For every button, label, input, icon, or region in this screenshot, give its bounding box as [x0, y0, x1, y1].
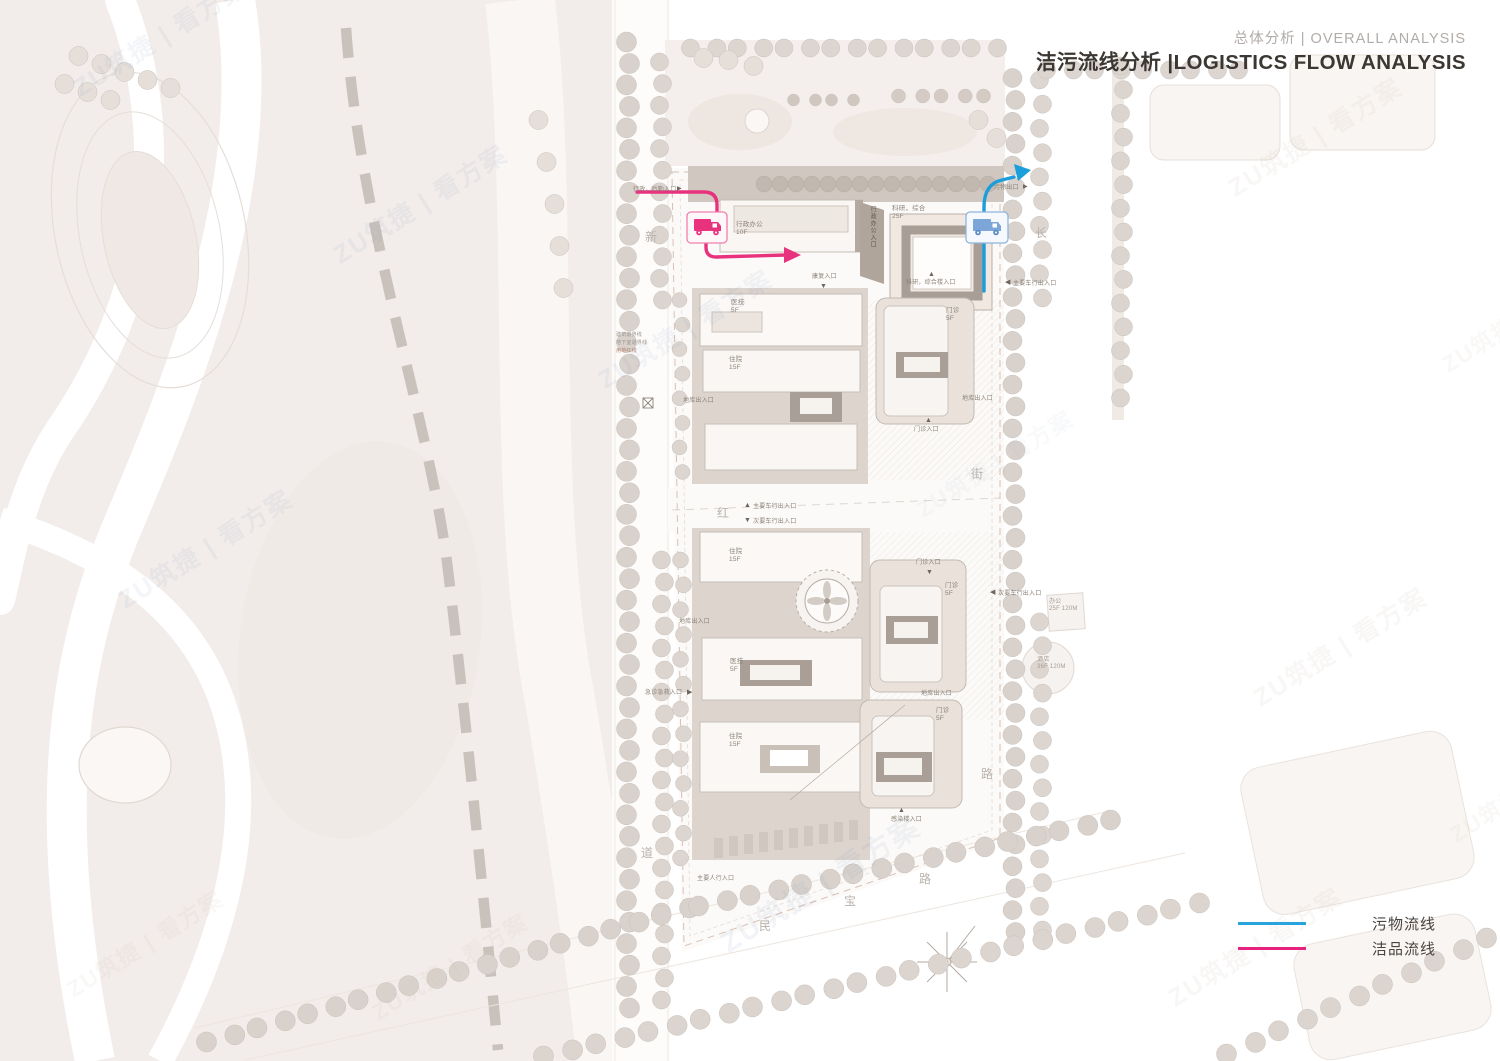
legend-item-clean: 洁品流线 [1238, 938, 1436, 959]
site-plan-drawing [0, 0, 1500, 1061]
label-inpatient-south: 住院 15F [729, 733, 742, 748]
label-setback-basement: 地下室退界线 [616, 341, 647, 347]
title-block: 总体分析 | OVERALL ANALYSIS 洁污流线分析 |LOGISTIC… [1036, 30, 1466, 76]
label-garage-southeast: 地库出入口 [921, 691, 952, 698]
logistics-flow-analysis-plan: ZU筑捷 | 看方案ZU筑捷 | 看方案ZU筑捷 | 看方案ZU筑捷 | 看方案… [0, 0, 1500, 1061]
label-inpatient-mid: 住院 15F [729, 548, 742, 563]
label-research-building: 科研，综合 25F [892, 205, 926, 220]
legend-label-waste: 污物流线 [1372, 913, 1436, 934]
park-area [0, 0, 655, 1061]
label-secondary-vehicle-entrance-east: 次要车行出入口 [998, 591, 1041, 598]
waste-truck-icon [966, 212, 1008, 243]
label-main-pedestrian-entrance: 主要人行入口 [697, 876, 734, 883]
label-outpatient-entrance-north: 门诊入口 [914, 427, 939, 434]
label-secondary-vehicle-entrance: 次要车行出入口 [753, 519, 796, 526]
entrance-marker: ▶ [1023, 184, 1028, 191]
label-setback-building: 建筑退界线 [616, 333, 642, 339]
label-red-line: 用地红线 [616, 349, 637, 355]
label-outpatient-entrance-mid: 门诊入口 [916, 560, 941, 567]
legend-item-waste: 污物流线 [1238, 913, 1436, 934]
label-admin-office: 行政办公 10F [736, 221, 763, 236]
entrance-marker: ▶ [687, 689, 693, 697]
label-rehab-entrance: 康复入口 [812, 274, 837, 281]
label-outpatient-se2: 门诊 5F [936, 707, 949, 722]
entrance-marker: ▼ [820, 283, 827, 291]
label-inpatient-north: 住院 15F [729, 356, 742, 371]
label-outpatient-se1: 门诊 5F [945, 582, 958, 597]
label-main-vehicle-entrance-east: 主要车行出入口 [1013, 281, 1056, 288]
label-office-tower: 办公 25F 120M [1049, 599, 1078, 613]
label-garage-east: 地库出入口 [962, 396, 993, 403]
entrance-marker: ▼ [744, 517, 751, 525]
clean-truck-icon [687, 212, 727, 243]
north-podium [688, 166, 1004, 202]
street-name-char: 新 [645, 228, 657, 245]
label-admin-entrance: 行政办公入口 [868, 206, 875, 248]
building-south-complex [692, 528, 870, 860]
label-garage-west: 地库出入口 [683, 398, 714, 405]
street-name-char: 民 [759, 917, 771, 934]
label-emergency-entrance: 急诊急救入口 [645, 690, 682, 697]
label-service-entrance: 行政，后勤入口 [633, 187, 676, 194]
label-infection-entrance: 感染楼入口 [891, 817, 922, 824]
label-medtech-north: 医技 5F [731, 299, 744, 314]
building-medtech-inpatient-north [692, 288, 868, 484]
entrance-marker: ◀ [990, 589, 996, 597]
street-name-char: 长 [1035, 224, 1047, 241]
exit-box-symbol [643, 398, 653, 408]
entrance-marker: ▲ [744, 502, 751, 510]
label-outpatient-ne: 门诊 5F [946, 307, 959, 322]
entrance-marker: ▲ [925, 417, 932, 425]
entrance-marker: ▼ [926, 569, 933, 577]
label-research-entrance: 科研，综合楼入口 [906, 280, 956, 287]
waste-flow-swatch [1238, 922, 1306, 925]
clean-flow-swatch [1238, 947, 1306, 950]
street-name-char: 街 [971, 465, 983, 482]
entrance-marker: ▶ [677, 186, 682, 193]
entrance-marker: ▲ [928, 271, 935, 279]
entrance-marker: ▲ [898, 807, 905, 815]
legend-label-clean: 洁品流线 [1372, 938, 1436, 959]
street-name-char: 道 [641, 844, 653, 861]
entrance-marker: ◀ [1005, 279, 1011, 287]
page-subtitle: 总体分析 | OVERALL ANALYSIS [1036, 30, 1466, 48]
page-title: 洁污流线分析 |LOGISTICS FLOW ANALYSIS [1036, 50, 1466, 76]
street-name-char: 红 [717, 504, 729, 521]
label-garage-southwest: 地库出入口 [679, 619, 710, 626]
label-main-vehicle-entrance: 主要车行出入口 [753, 504, 796, 511]
label-hotel-tower: 酒店 36F 120M [1037, 657, 1066, 671]
label-medtech-south: 医技 5F [730, 658, 743, 673]
street-name-char: 宝 [844, 892, 856, 909]
street-name-char: 路 [981, 765, 993, 782]
street-name-char: 路 [919, 870, 931, 887]
label-waste-exit: 污物出口 [994, 185, 1019, 192]
